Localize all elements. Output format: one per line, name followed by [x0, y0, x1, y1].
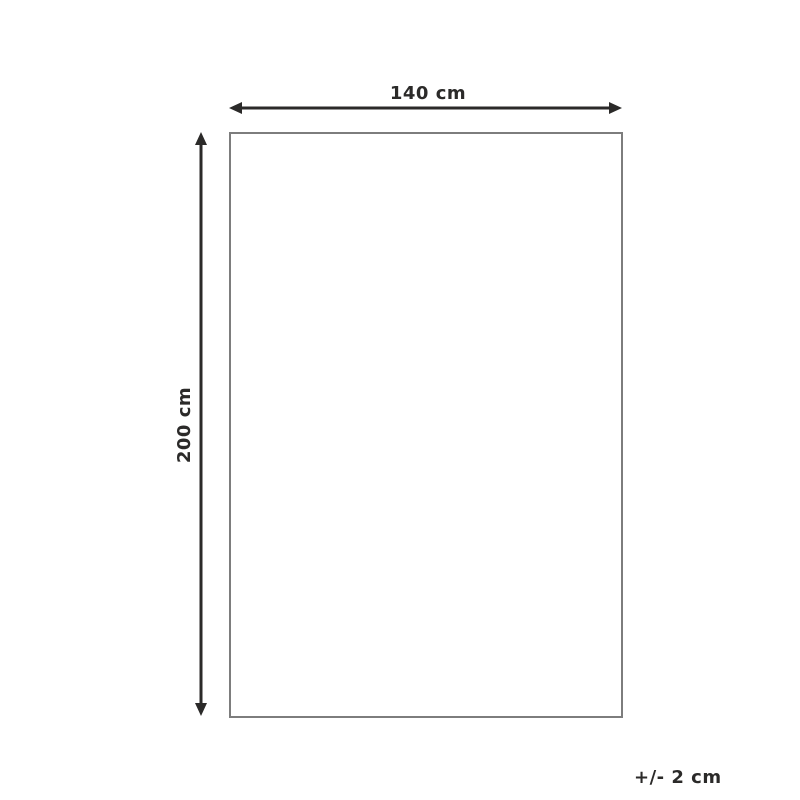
tolerance-label: +/- 2 cm	[634, 769, 722, 787]
width-dimension-label: 140 cm	[390, 85, 466, 103]
arrowhead-right-icon	[609, 102, 622, 114]
arrowhead-down-icon	[195, 703, 207, 716]
height-dimension-arrow	[194, 132, 208, 716]
height-dimension-label: 200 cm	[176, 387, 194, 463]
product-outline-rectangle	[229, 132, 623, 718]
dimension-diagram: 140 cm 200 cm +/- 2 cm	[0, 0, 800, 800]
